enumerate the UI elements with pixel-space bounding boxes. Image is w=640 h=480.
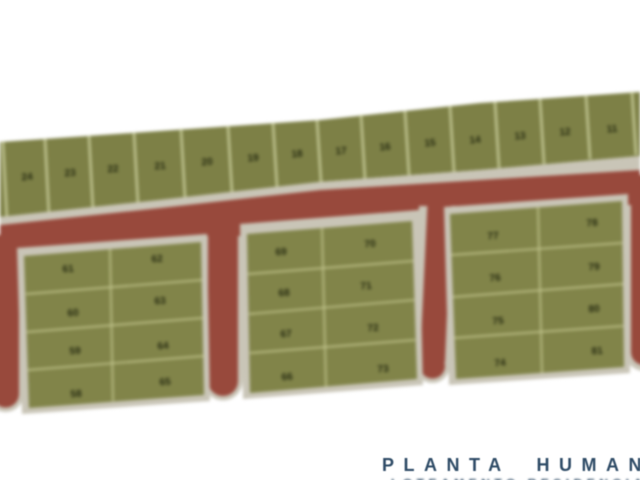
svg-text:18: 18 [291, 149, 303, 161]
svg-text:61: 61 [62, 264, 74, 276]
svg-text:75: 75 [492, 316, 504, 328]
svg-text:13: 13 [514, 131, 526, 143]
svg-text:20: 20 [201, 157, 213, 169]
svg-text:68: 68 [278, 288, 290, 300]
svg-text:78: 78 [586, 218, 598, 230]
svg-text:71: 71 [360, 281, 372, 293]
svg-text:76: 76 [489, 273, 501, 285]
svg-text:64: 64 [157, 341, 169, 353]
svg-text:72: 72 [367, 323, 379, 335]
svg-text:60: 60 [67, 308, 79, 320]
svg-text:21: 21 [154, 161, 166, 173]
svg-text:81: 81 [591, 346, 603, 358]
svg-text:59: 59 [69, 346, 81, 358]
svg-text:17: 17 [335, 146, 347, 158]
svg-text:79: 79 [588, 262, 600, 274]
svg-text:58: 58 [70, 389, 82, 401]
svg-text:77: 77 [487, 231, 499, 243]
svg-text:62: 62 [151, 254, 163, 266]
svg-text:23: 23 [64, 168, 76, 180]
svg-text:67: 67 [280, 329, 292, 341]
svg-text:24: 24 [21, 172, 33, 184]
svg-text:80: 80 [588, 304, 600, 316]
svg-text:19: 19 [247, 153, 259, 165]
svg-text:70: 70 [364, 239, 376, 251]
svg-text:63: 63 [154, 296, 166, 308]
svg-text:11: 11 [606, 124, 618, 136]
svg-text:15: 15 [424, 138, 436, 150]
svg-text:65: 65 [159, 377, 171, 389]
svg-text:LOTEAMENTO RESIDENCIAL PLANALT: LOTEAMENTO RESIDENCIAL PLANALTO [391, 477, 640, 480]
svg-text:66: 66 [281, 372, 293, 384]
svg-text:14: 14 [469, 135, 481, 147]
svg-text:16: 16 [379, 142, 391, 154]
svg-text:74: 74 [494, 358, 506, 370]
svg-text:69: 69 [275, 247, 287, 259]
svg-text:12: 12 [559, 127, 571, 139]
svg-text:73: 73 [377, 364, 389, 376]
svg-text:22: 22 [107, 164, 119, 176]
svg-text:PLANTA HUMANIZADA: PLANTA HUMANIZADA [382, 455, 640, 475]
